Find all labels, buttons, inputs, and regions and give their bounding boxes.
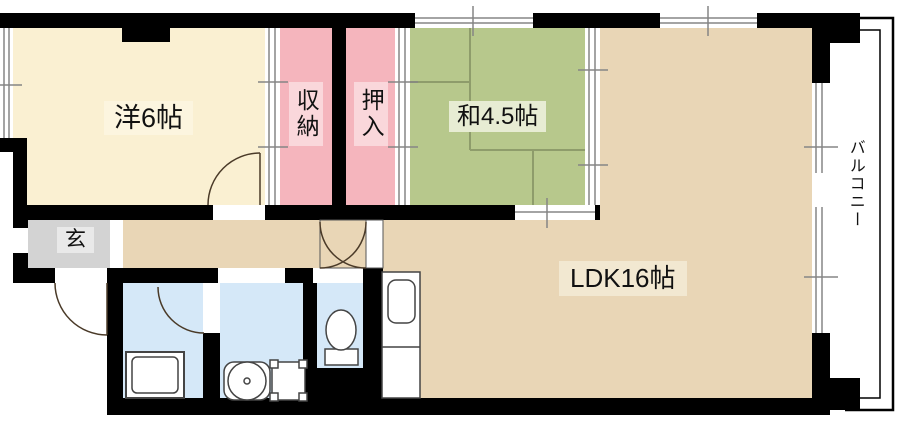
washing-machine-pan-icon [270,360,307,401]
room-label-ldk: LDK16帖 [559,261,687,296]
entrance-side-niche [13,228,28,253]
room-label-storage: 収納 [289,82,323,146]
washbasin-icon [224,362,270,400]
balcony-door-upper [812,83,830,173]
bathtub-icon [126,352,184,398]
room-label-entrance: 玄 [57,227,94,253]
toilet-door-opening [313,268,363,283]
washroom-door-opening [218,268,285,283]
entrance-door-opening [55,268,107,283]
floor-plan: 洋6帖 収納 押入 和4.5帖 LDK16帖 玄 バルコニー [0,0,905,425]
room-label-balcony: バルコニー [846,139,863,229]
bathroom-door-opening [203,283,220,333]
room-label-japanese: 和4.5帖 [449,101,546,132]
toilet-icon [325,310,358,365]
entrance-step [110,220,123,268]
balcony-door-lower [812,207,830,333]
room-label-closet: 押入 [354,82,388,146]
hall-ldk-doorway [366,220,383,268]
sliding-track-western-storage [265,28,280,205]
western-room-door-opening [213,205,265,220]
room-label-western: 洋6帖 [104,101,193,135]
sliding-track-japanese-ldk [585,28,600,205]
entrance-door-arc [55,283,107,335]
floor-plan-drawing [0,0,905,425]
kitchen-sink-icon [382,272,420,398]
wall-pillar [122,28,170,42]
sliding-track-closet-japanese [395,28,410,205]
window-left [0,28,13,138]
window-top-japanese [415,13,533,28]
